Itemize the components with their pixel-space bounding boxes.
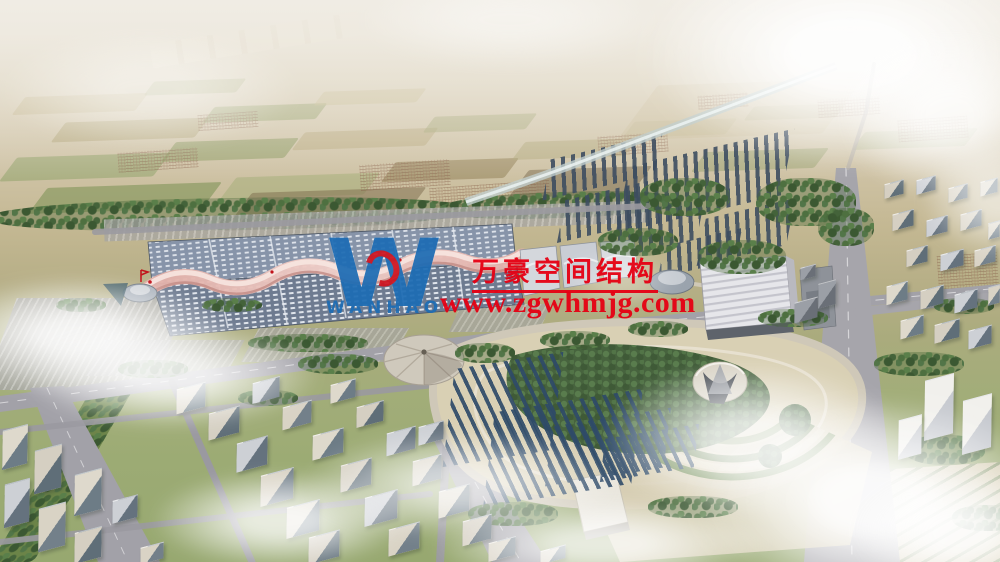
- cloud: [0, 30, 300, 150]
- cloud: [20, 320, 320, 430]
- cloud: [360, 0, 660, 70]
- aerial-rendering-scene: W WANHAO 万豪空间结构 www.zgwhmjg.com: [0, 0, 1000, 562]
- logo-wordmark: WANHAO: [326, 298, 438, 318]
- watermark-website: www.zgwhmjg.com: [440, 286, 696, 320]
- watermark-logo: W WANHAO: [326, 234, 446, 320]
